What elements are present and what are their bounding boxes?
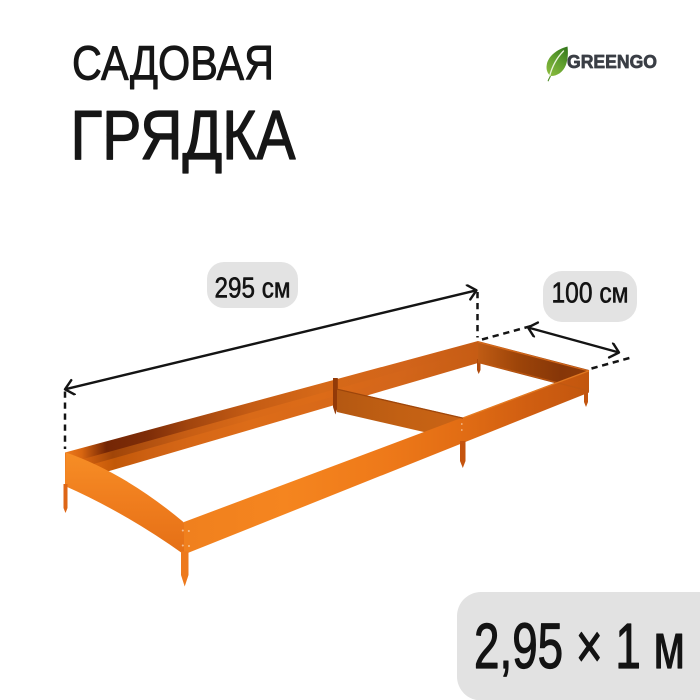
svg-text:САДОВАЯ: САДОВАЯ bbox=[72, 37, 274, 91]
svg-text:100 см: 100 см bbox=[552, 278, 629, 310]
svg-text:295 см: 295 см bbox=[215, 273, 291, 305]
svg-text:2,95 × 1 м: 2,95 × 1 м bbox=[474, 610, 685, 682]
svg-text:GREENGO: GREENGO bbox=[567, 52, 657, 72]
svg-text:ГРЯДКА: ГРЯДКА bbox=[71, 96, 296, 174]
